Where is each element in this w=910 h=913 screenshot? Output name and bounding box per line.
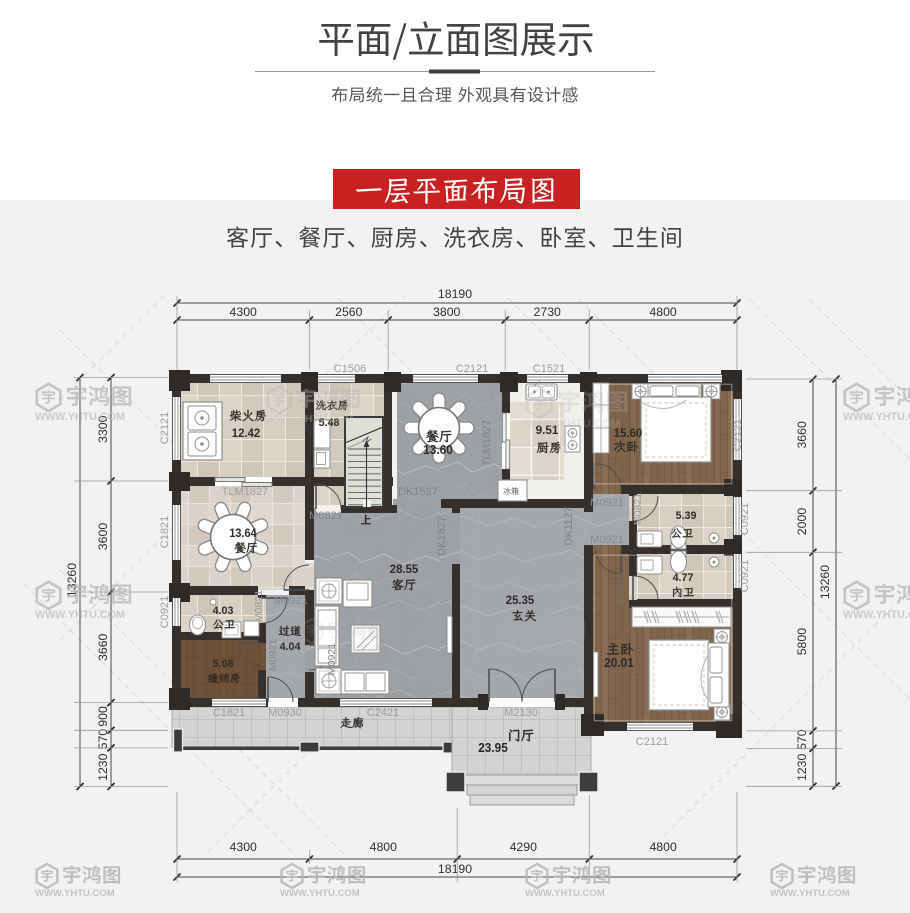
svg-text:M0821: M0821 xyxy=(632,493,644,525)
svg-text:3660: 3660 xyxy=(96,633,110,661)
svg-text:3800: 3800 xyxy=(433,305,461,319)
svg-text:WWW.YHTU.COM: WWW.YHTU.COM xyxy=(843,609,910,621)
svg-text:C1506: C1506 xyxy=(334,363,366,375)
svg-text:WWW.YHTU.COM: WWW.YHTU.COM xyxy=(525,418,621,430)
svg-text:C2121: C2121 xyxy=(636,736,668,748)
svg-text:4290: 4290 xyxy=(510,840,538,854)
svg-text:25.35: 25.35 xyxy=(506,593,535,607)
svg-text:4800: 4800 xyxy=(649,305,677,319)
svg-text:DK1127: DK1127 xyxy=(563,507,575,546)
svg-text:2560: 2560 xyxy=(335,305,363,319)
svg-text:M2130: M2130 xyxy=(504,707,538,719)
svg-text:C0921: C0921 xyxy=(739,503,751,535)
svg-text:M0821: M0821 xyxy=(615,572,627,604)
svg-text:M0921: M0921 xyxy=(267,639,279,671)
svg-text:12.42: 12.42 xyxy=(232,426,261,440)
svg-text:WWW.YHTU.COM: WWW.YHTU.COM xyxy=(35,411,125,423)
svg-text:DK1527: DK1527 xyxy=(398,486,438,498)
svg-text:28.55: 28.55 xyxy=(390,562,419,576)
svg-text:4800: 4800 xyxy=(370,840,398,854)
svg-text:23.95: 23.95 xyxy=(478,741,508,755)
svg-text:20.01: 20.01 xyxy=(604,656,634,670)
svg-text:2730: 2730 xyxy=(534,305,562,319)
svg-text:DK1827: DK1827 xyxy=(436,516,448,556)
svg-text:4300: 4300 xyxy=(230,305,258,319)
svg-text:C2121: C2121 xyxy=(732,419,744,451)
svg-text:18190: 18190 xyxy=(438,862,472,876)
svg-text:4300: 4300 xyxy=(230,840,258,854)
svg-text:WWW.YHTU.COM: WWW.YHTU.COM xyxy=(843,411,910,423)
svg-text:M0821: M0821 xyxy=(253,590,265,622)
svg-text:C0921: C0921 xyxy=(739,560,751,592)
svg-text:M0821: M0821 xyxy=(309,510,343,522)
svg-text:M0921: M0921 xyxy=(590,534,624,546)
svg-text:13.60: 13.60 xyxy=(423,443,453,457)
svg-text:WWW.YHTU.COM: WWW.YHTU.COM xyxy=(300,643,380,654)
svg-text:WWW.YHTU.COM: WWW.YHTU.COM xyxy=(525,888,605,899)
svg-text:C2121: C2121 xyxy=(159,412,171,444)
svg-text:C0921: C0921 xyxy=(159,596,171,628)
svg-text:1230: 1230 xyxy=(795,754,809,782)
svg-text:5.08: 5.08 xyxy=(213,658,234,670)
svg-text:18190: 18190 xyxy=(438,287,472,301)
svg-text:570: 570 xyxy=(96,729,110,750)
svg-text:13.64: 13.64 xyxy=(229,528,257,540)
svg-text:C2421: C2421 xyxy=(367,707,399,719)
svg-text:4.03: 4.03 xyxy=(213,605,234,617)
svg-text:4.77: 4.77 xyxy=(673,572,694,584)
svg-text:C2121: C2121 xyxy=(456,363,488,375)
svg-text:3660: 3660 xyxy=(795,421,809,449)
svg-text:TLM1827: TLM1827 xyxy=(222,486,268,498)
svg-text:2000: 2000 xyxy=(795,508,809,536)
svg-text:5800: 5800 xyxy=(795,628,809,656)
svg-text:4800: 4800 xyxy=(649,840,677,854)
svg-text:C1821: C1821 xyxy=(213,707,245,719)
svg-text:TLM1827: TLM1827 xyxy=(481,420,493,466)
svg-text:3600: 3600 xyxy=(96,523,110,551)
svg-text:570: 570 xyxy=(795,729,809,750)
svg-text:1230: 1230 xyxy=(96,753,110,781)
svg-text:5.39: 5.39 xyxy=(676,510,697,522)
svg-text:M0921: M0921 xyxy=(274,595,308,607)
svg-text:C1521: C1521 xyxy=(533,363,565,375)
svg-text:WWW.YHTU.COM: WWW.YHTU.COM xyxy=(770,888,850,899)
svg-text:C1821: C1821 xyxy=(159,516,171,548)
svg-text:13260: 13260 xyxy=(818,565,832,599)
svg-text:WWW.YHTU.COM: WWW.YHTU.COM xyxy=(35,888,115,899)
svg-text:WWW.YHTU.COM: WWW.YHTU.COM xyxy=(280,888,360,899)
svg-text:M0921: M0921 xyxy=(590,497,624,509)
svg-text:M0930: M0930 xyxy=(268,707,302,719)
svg-text:WWW.YHTU.COM: WWW.YHTU.COM xyxy=(266,414,354,425)
svg-text:WWW.YHTU.COM: WWW.YHTU.COM xyxy=(35,609,125,621)
svg-text:4.04: 4.04 xyxy=(280,641,302,653)
svg-text:WWW.YHTU.COM: WWW.YHTU.COM xyxy=(500,643,580,654)
svg-text:900: 900 xyxy=(96,706,110,727)
